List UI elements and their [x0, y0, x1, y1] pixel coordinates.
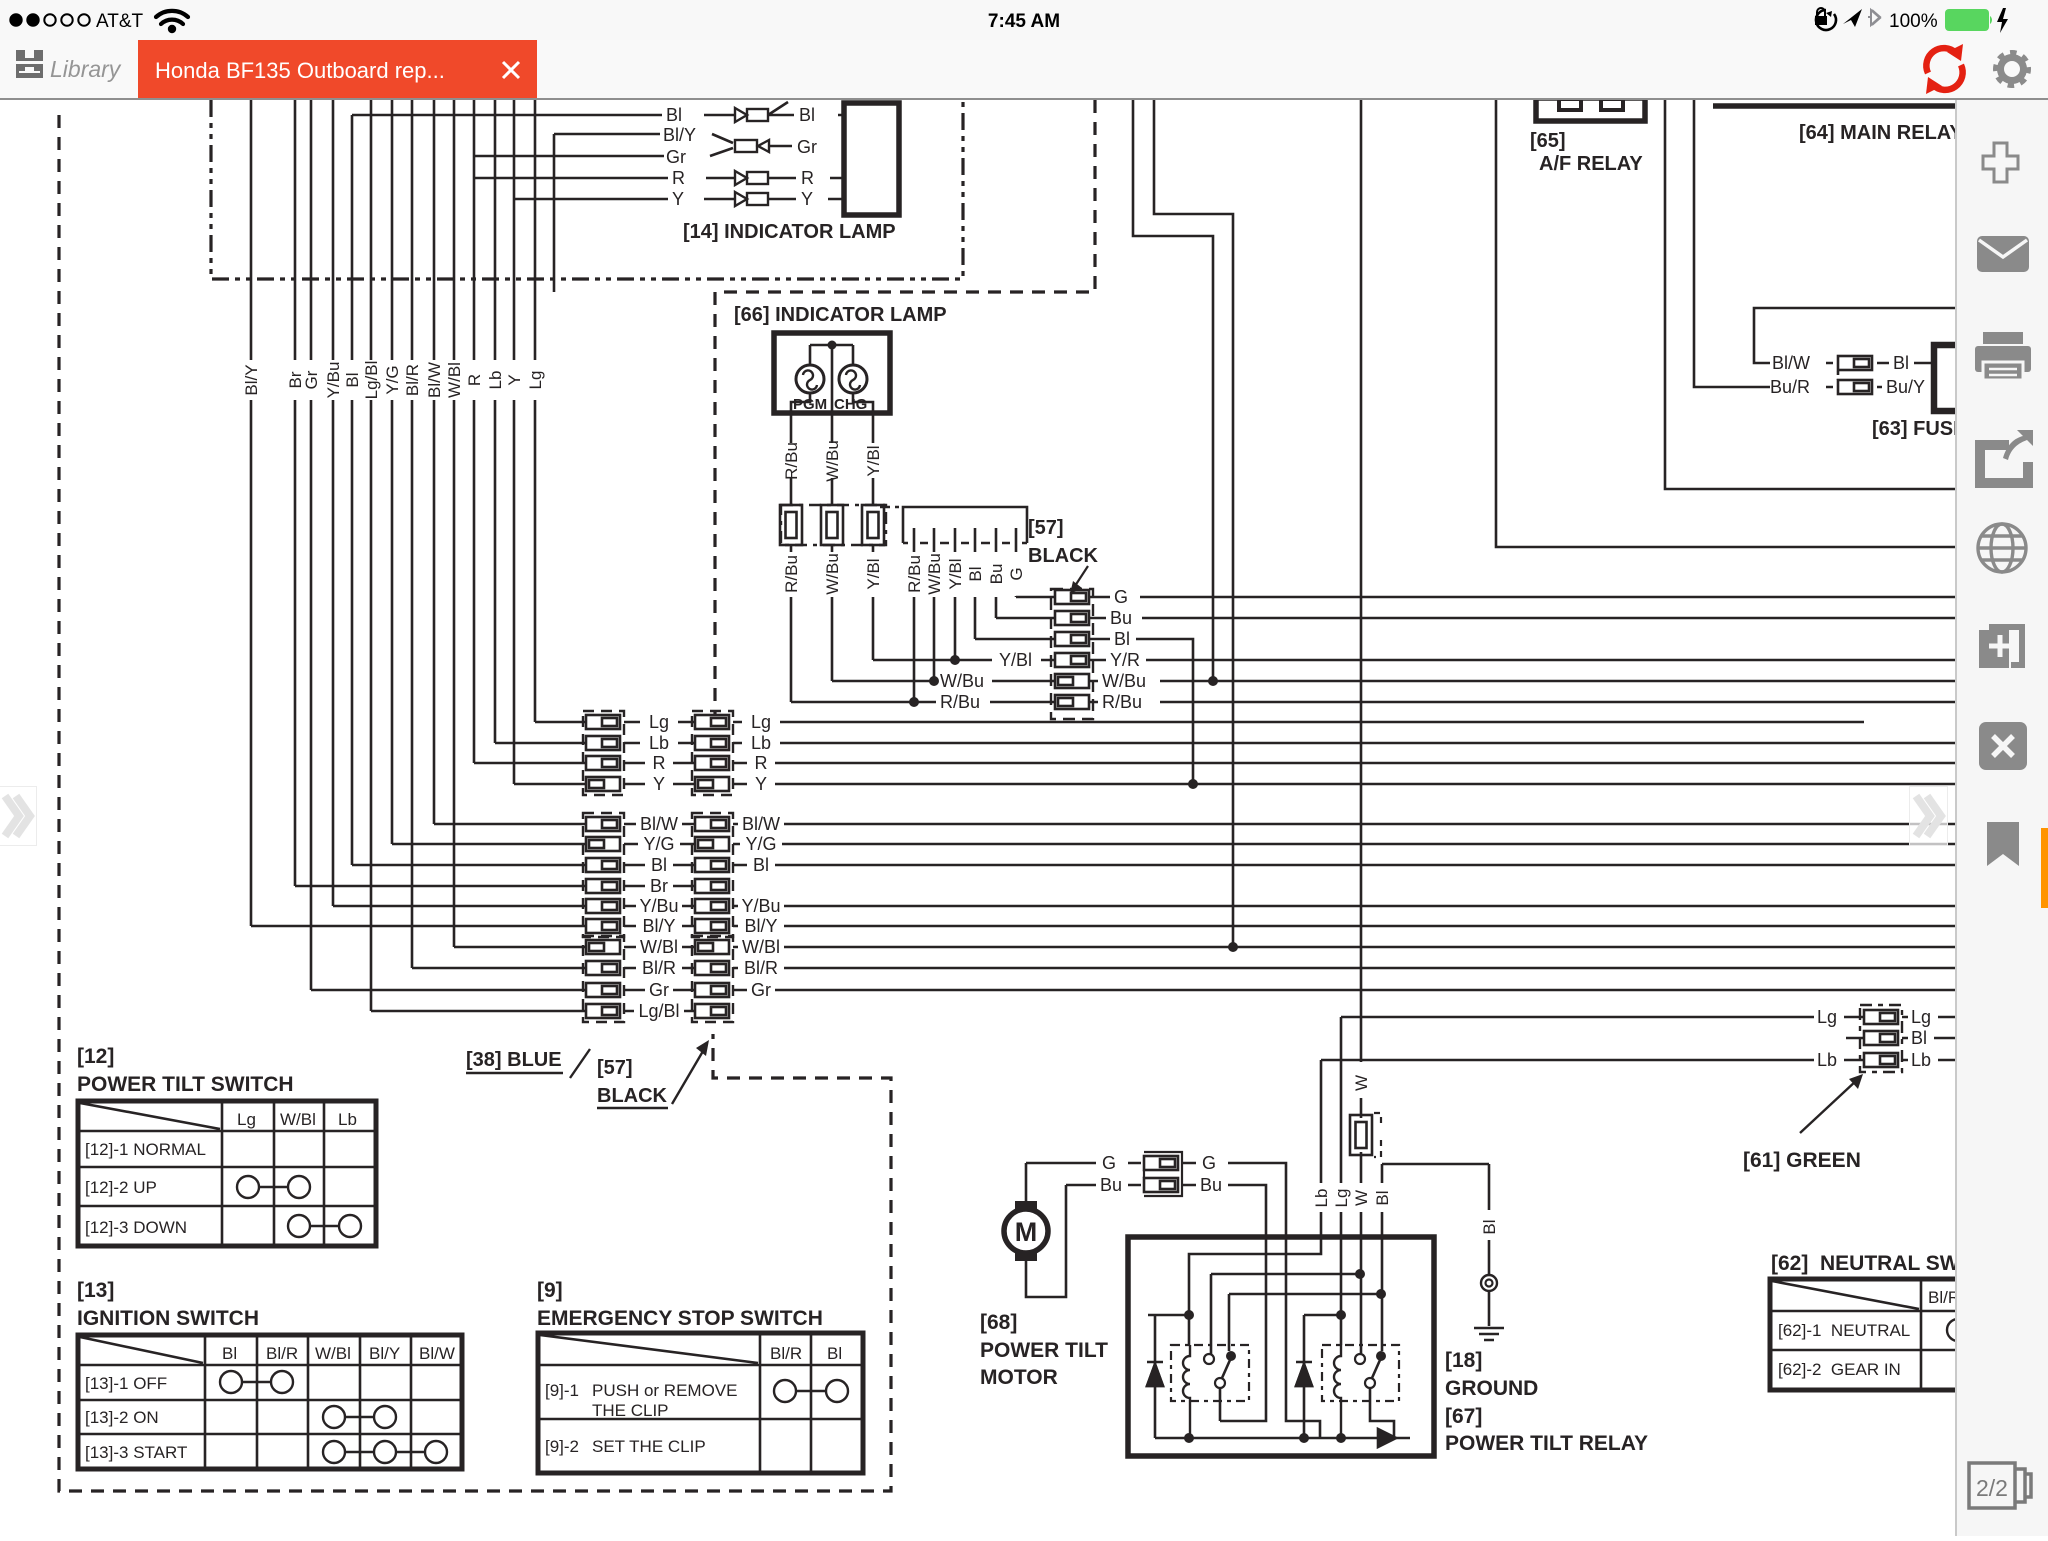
- svg-text:R/Bu: R/Bu: [905, 555, 924, 593]
- svg-text:Gr: Gr: [797, 137, 817, 157]
- svg-text:Y/R: Y/R: [1110, 650, 1140, 670]
- svg-text:Lb: Lb: [1911, 1050, 1931, 1070]
- svg-text:Br: Br: [650, 876, 668, 896]
- svg-text:Bl/R: Bl/R: [770, 1344, 802, 1363]
- svg-text:AT&T: AT&T: [96, 11, 144, 32]
- svg-text:EMERGENCY STOP SWITCH: EMERGENCY STOP SWITCH: [537, 1307, 823, 1330]
- svg-text:Lg: Lg: [1817, 1007, 1837, 1027]
- svg-text:POWER TILT RELAY: POWER TILT RELAY: [1445, 1432, 1648, 1455]
- svg-text:R/Bu: R/Bu: [1102, 692, 1142, 712]
- svg-text:Y/Bl: Y/Bl: [864, 445, 883, 476]
- svg-text:Y: Y: [755, 774, 767, 794]
- svg-text:[57]: [57]: [1028, 517, 1064, 539]
- svg-text:Bu/Y: Bu/Y: [1886, 377, 1925, 397]
- svg-text:[62]-1 NEUTRAL: [62]-1 NEUTRAL: [1778, 1321, 1910, 1340]
- svg-text:Gr: Gr: [666, 147, 686, 167]
- svg-text:Bl/W: Bl/W: [640, 814, 678, 834]
- svg-text:Y: Y: [505, 374, 524, 385]
- svg-text:Bl/R: Bl/R: [642, 958, 676, 978]
- svg-text:Lg/Bl: Lg/Bl: [362, 361, 381, 400]
- svg-text:Y/G: Y/G: [745, 834, 776, 854]
- svg-text:W: W: [1352, 1075, 1371, 1091]
- svg-text:G: G: [1202, 1153, 1216, 1173]
- svg-text:Y/Bl: Y/Bl: [946, 558, 965, 589]
- svg-text:Bl/R: Bl/R: [403, 364, 422, 396]
- svg-text:[12]-2 UP: [12]-2 UP: [85, 1178, 157, 1197]
- svg-text:Lg: Lg: [526, 371, 545, 390]
- svg-text:W/Bu: W/Bu: [1102, 671, 1146, 691]
- svg-text:Bl/W: Bl/W: [425, 362, 444, 398]
- svg-text:[66] INDICATOR LAMP: [66] INDICATOR LAMP: [734, 304, 947, 326]
- svg-text:Bl: Bl: [753, 855, 769, 875]
- svg-text:[64] MAIN RELAY: [64] MAIN RELAY: [1799, 122, 1955, 144]
- svg-text:POWER TILT SWITCH: POWER TILT SWITCH: [77, 1073, 294, 1096]
- svg-text:Y/Bu: Y/Bu: [639, 896, 678, 916]
- svg-text:Bl/Y: Bl/Y: [242, 364, 261, 395]
- svg-text:Bl/Y: Bl/Y: [663, 125, 696, 145]
- svg-text:PUSH or REMOVE: PUSH or REMOVE: [592, 1381, 737, 1400]
- svg-text:Lb: Lb: [751, 733, 771, 753]
- svg-text:[12]-3 DOWN: [12]-3 DOWN: [85, 1218, 187, 1237]
- svg-text:R: R: [465, 374, 484, 386]
- svg-text:Bl: Bl: [1911, 1028, 1927, 1048]
- svg-text:[13]-1 OFF: [13]-1 OFF: [85, 1374, 167, 1393]
- svg-text:Y/Bl: Y/Bl: [864, 558, 883, 589]
- svg-text:[12]-1 NORMAL: [12]-1 NORMAL: [85, 1140, 206, 1159]
- svg-text:[12]: [12]: [77, 1045, 114, 1068]
- svg-text:Bl/W: Bl/W: [742, 814, 780, 834]
- svg-text:[9]-1: [9]-1: [545, 1381, 579, 1400]
- svg-text:PGM: PGM: [793, 396, 827, 413]
- svg-text:CHG: CHG: [834, 396, 867, 413]
- svg-text:Bu: Bu: [987, 564, 1006, 585]
- svg-text:[38] BLUE: [38] BLUE: [466, 1049, 562, 1071]
- svg-text:Bl: Bl: [1373, 1190, 1392, 1205]
- svg-text:Y/Bu: Y/Bu: [324, 362, 343, 399]
- svg-text:THE CLIP: THE CLIP: [592, 1401, 669, 1420]
- svg-text:Y/G: Y/G: [643, 834, 674, 854]
- svg-text:Lg: Lg: [1332, 1189, 1351, 1208]
- svg-text:Bl/R: Bl/R: [744, 958, 778, 978]
- svg-text:BLACK: BLACK: [597, 1085, 668, 1107]
- svg-text:Lg: Lg: [237, 1110, 256, 1129]
- svg-text:Library: Library: [50, 56, 122, 82]
- svg-text:W/Bl: W/Bl: [280, 1110, 316, 1129]
- svg-text:Y: Y: [672, 189, 684, 209]
- svg-text:[62]-2 GEAR IN: [62]-2 GEAR IN: [1778, 1360, 1901, 1379]
- svg-text:BLACK: BLACK: [1028, 545, 1099, 567]
- svg-text:Bl: Bl: [1480, 1219, 1499, 1234]
- svg-text:[67]: [67]: [1445, 1405, 1482, 1428]
- svg-text:100%: 100%: [1889, 11, 1938, 32]
- svg-text:Lb: Lb: [338, 1110, 357, 1129]
- svg-text:[14] INDICATOR LAMP: [14] INDICATOR LAMP: [683, 221, 896, 243]
- svg-text:Y: Y: [653, 774, 665, 794]
- svg-text:Bl: Bl: [222, 1344, 237, 1363]
- svg-text:Bl: Bl: [1893, 353, 1909, 373]
- svg-text:R: R: [801, 168, 814, 188]
- svg-text:Bl: Bl: [966, 566, 985, 581]
- svg-text:Bl/W: Bl/W: [1772, 353, 1810, 373]
- svg-text:IGNITION SWITCH: IGNITION SWITCH: [77, 1307, 259, 1330]
- svg-text:Bu: Bu: [1100, 1175, 1122, 1195]
- svg-text:Bl: Bl: [1114, 629, 1130, 649]
- svg-text:Bl: Bl: [666, 105, 682, 125]
- svg-text:Bl/Y: Bl/Y: [744, 916, 777, 936]
- svg-text:W/Bu: W/Bu: [823, 440, 842, 482]
- svg-text:2/2: 2/2: [1976, 1475, 2008, 1501]
- svg-text:Lg/Bl: Lg/Bl: [638, 1001, 679, 1021]
- svg-text:Y/Bl: Y/Bl: [999, 650, 1032, 670]
- svg-text:Lg: Lg: [751, 712, 771, 732]
- svg-text:[13]-3 START: [13]-3 START: [85, 1443, 187, 1462]
- svg-text:W/Bu: W/Bu: [940, 671, 984, 691]
- svg-text:R: R: [653, 753, 666, 773]
- svg-text:G: G: [1007, 567, 1026, 580]
- svg-text:R: R: [755, 753, 768, 773]
- svg-text:Bl/W: Bl/W: [419, 1344, 455, 1363]
- svg-text:Y/G: Y/G: [383, 365, 402, 394]
- svg-text:Bu: Bu: [1110, 608, 1132, 628]
- svg-text:MOTOR: MOTOR: [980, 1366, 1058, 1389]
- svg-text:[13]-2 ON: [13]-2 ON: [85, 1408, 159, 1427]
- svg-text:W/Bu: W/Bu: [925, 553, 944, 595]
- svg-text:Gr: Gr: [649, 980, 669, 1000]
- svg-text:Bl: Bl: [343, 372, 362, 387]
- svg-text:R/Bu: R/Bu: [782, 442, 801, 480]
- svg-text:[62] NEUTRAL SW: [62] NEUTRAL SW: [1771, 1252, 1955, 1275]
- svg-text:Bl/R: Bl/R: [266, 1344, 298, 1363]
- svg-text:Lb: Lb: [1817, 1050, 1837, 1070]
- svg-text:W/Bu: W/Bu: [823, 553, 842, 595]
- svg-text:A/F RELAY: A/F RELAY: [1539, 153, 1643, 175]
- svg-text:[61] GREEN: [61] GREEN: [1743, 1149, 1861, 1172]
- svg-text:G: G: [1114, 587, 1128, 607]
- svg-text:W: W: [1352, 1190, 1371, 1206]
- svg-text:Lg: Lg: [649, 712, 669, 732]
- svg-text:Bl: Bl: [799, 105, 815, 125]
- svg-text:G: G: [1102, 1153, 1116, 1173]
- svg-text:POWER TILT: POWER TILT: [980, 1339, 1108, 1362]
- svg-text:Y/Bu: Y/Bu: [741, 896, 780, 916]
- svg-text:Gr: Gr: [751, 980, 771, 1000]
- svg-text:Bl/R: Bl/R: [1928, 1288, 1955, 1307]
- svg-text:W/Bl: W/Bl: [315, 1344, 351, 1363]
- svg-text:Lb: Lb: [649, 733, 669, 753]
- svg-text:[9]: [9]: [537, 1279, 563, 1302]
- svg-text:M: M: [1015, 1217, 1038, 1247]
- svg-text:[18]: [18]: [1445, 1349, 1482, 1372]
- svg-text:Bl: Bl: [651, 855, 667, 875]
- svg-text:[9]-2: [9]-2: [545, 1437, 579, 1456]
- svg-text:[68]: [68]: [980, 1311, 1017, 1334]
- svg-text:[57]: [57]: [597, 1057, 633, 1079]
- svg-text:Gr: Gr: [302, 370, 321, 389]
- svg-text:W/Bl: W/Bl: [640, 937, 678, 957]
- svg-text:SET THE CLIP: SET THE CLIP: [592, 1437, 706, 1456]
- svg-text:GROUND: GROUND: [1445, 1377, 1538, 1400]
- svg-text:Bu/R: Bu/R: [1770, 377, 1810, 397]
- svg-text:[63] FUSE: [63] FUSE: [1872, 418, 1955, 440]
- svg-text:R/Bu: R/Bu: [940, 692, 980, 712]
- svg-text:Bl: Bl: [827, 1344, 842, 1363]
- svg-text:7:45 AM: 7:45 AM: [988, 11, 1060, 32]
- svg-text:Lb: Lb: [1312, 1189, 1331, 1208]
- svg-text:[65]: [65]: [1530, 130, 1566, 152]
- svg-text:Bl/Y: Bl/Y: [642, 916, 675, 936]
- svg-text:Y: Y: [801, 189, 813, 209]
- svg-text:R/Bu: R/Bu: [782, 555, 801, 593]
- svg-text:W/Bl: W/Bl: [445, 362, 464, 398]
- svg-text:W/Bl: W/Bl: [742, 937, 780, 957]
- svg-text:Lb: Lb: [486, 371, 505, 390]
- svg-text:Lg: Lg: [1911, 1007, 1931, 1027]
- svg-text:Bu: Bu: [1200, 1175, 1222, 1195]
- svg-text:R: R: [672, 168, 685, 188]
- svg-text:Bl/Y: Bl/Y: [369, 1344, 400, 1363]
- svg-text:[13]: [13]: [77, 1279, 114, 1302]
